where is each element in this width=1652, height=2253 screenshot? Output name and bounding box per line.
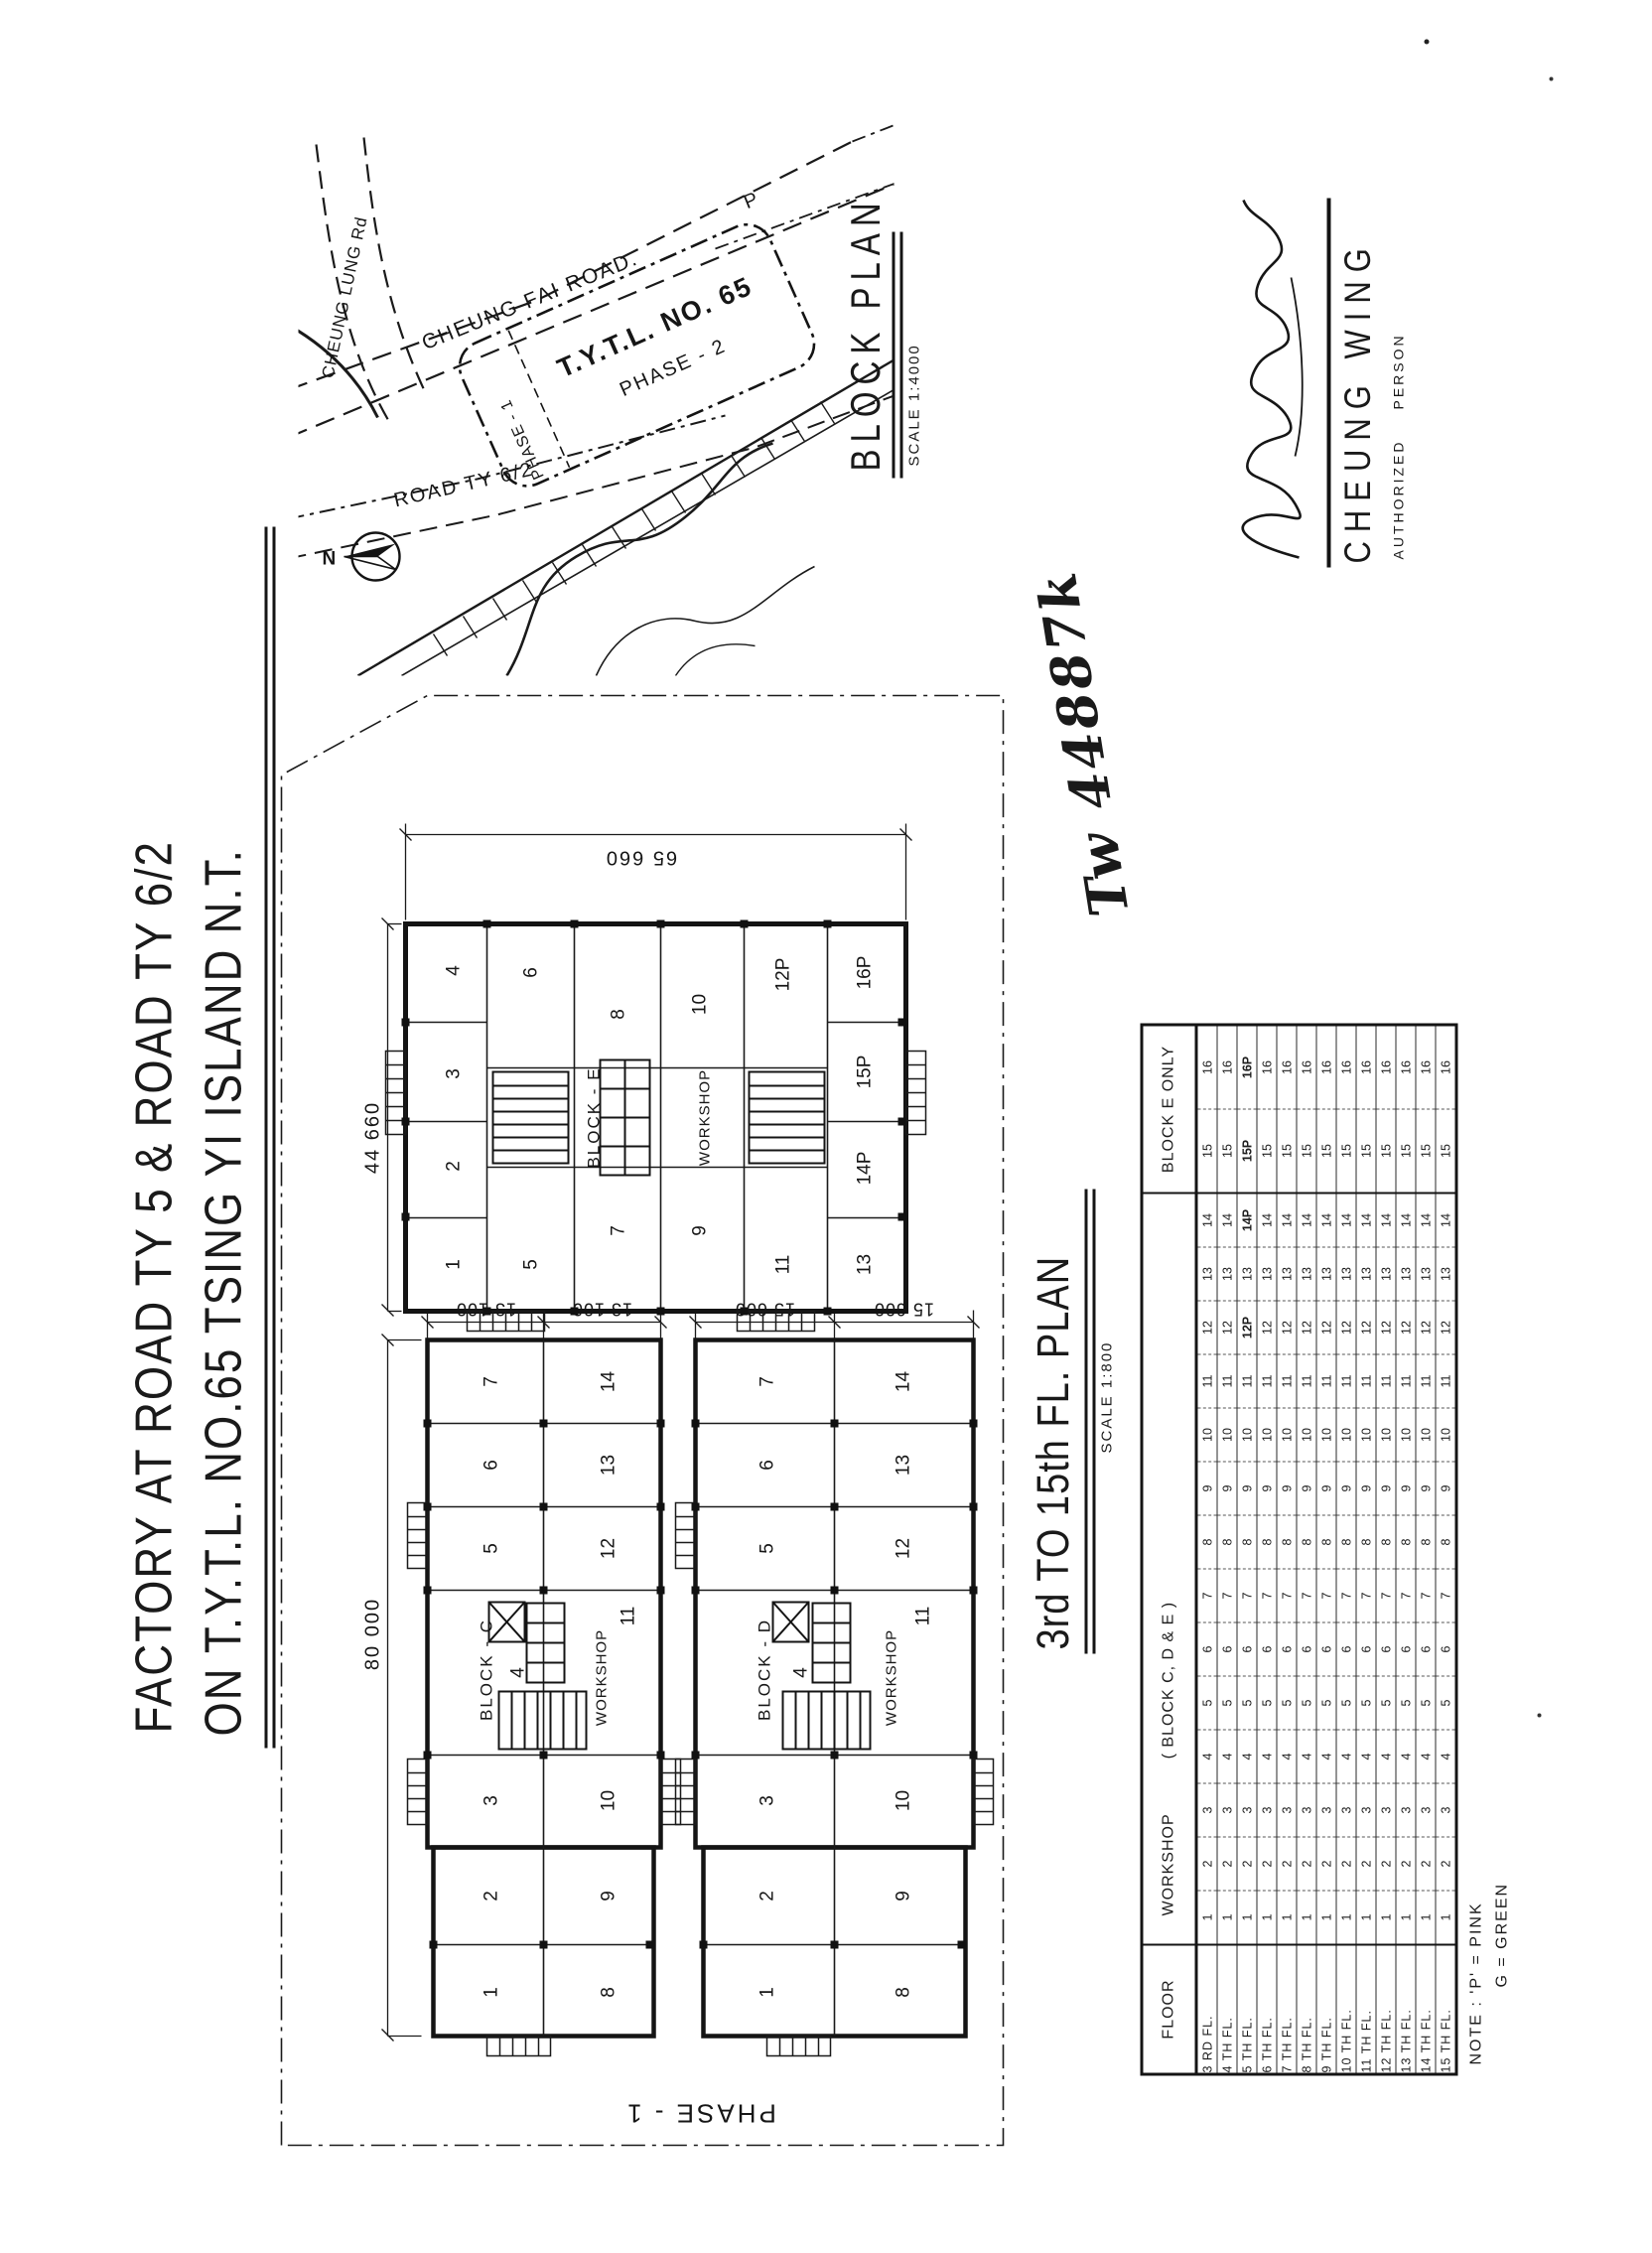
room-number: 12	[598, 1537, 619, 1558]
workshop-cell: 12	[1376, 1301, 1396, 1354]
workshop-cell: 16	[1356, 1025, 1376, 1109]
workshop-cell: 16	[1257, 1025, 1277, 1109]
workshop-cell: 5	[1277, 1676, 1297, 1730]
workshop-header: WORKSHOP ( BLOCK C, D & E )	[1142, 1193, 1196, 1944]
room-number: 11	[772, 1254, 793, 1274]
workshop-cell: 15	[1297, 1109, 1316, 1194]
workshop-cell: 3	[1237, 1783, 1257, 1837]
workshop-cell: 6	[1217, 1622, 1237, 1676]
block-e-stair-tabs	[385, 1051, 925, 1331]
workshop-cell: 11	[1336, 1354, 1356, 1408]
dim-e-height: 65 660	[604, 846, 676, 868]
room-number: 2	[481, 1891, 501, 1901]
workshop-cell: 7	[1316, 1569, 1336, 1622]
room-number: 3	[443, 1068, 464, 1079]
workshop-cell: 2	[1257, 1837, 1277, 1891]
workshop-cell: 8	[1277, 1515, 1297, 1569]
room-number: 10	[689, 993, 710, 1014]
workshop-cell: 5	[1396, 1676, 1416, 1730]
workshop-cell: 13	[1277, 1247, 1297, 1301]
room-number: 3	[481, 1795, 501, 1806]
workshop-cell: 7	[1376, 1569, 1396, 1622]
north-arrow-icon: N	[322, 532, 399, 580]
room-number: 6	[520, 967, 541, 978]
schedule-header-row: FLOOR WORKSHOP ( BLOCK C, D & E ) BLOCK …	[1142, 1025, 1196, 2074]
workshop-cell: 8	[1316, 1515, 1336, 1569]
workshop-cell: 8	[1196, 1515, 1217, 1569]
block-d-room-numbers: 1 2 3 4 5 6 7 8 9 10 11 12 13 14	[757, 1370, 933, 1997]
workshop-cell: 16	[1196, 1025, 1217, 1109]
workshop-cell: 5	[1316, 1676, 1336, 1730]
room-number: 16P	[854, 955, 875, 989]
workshop-cell: 3	[1356, 1783, 1376, 1837]
workshop-cell: 13	[1436, 1247, 1456, 1301]
workshop-cell: 5	[1376, 1676, 1396, 1730]
floor-cell: 8 TH FL.	[1297, 1944, 1316, 2074]
room-number: 3	[757, 1795, 777, 1806]
workshop-cell: 1	[1257, 1891, 1277, 1945]
workshop-cell: 11	[1436, 1354, 1456, 1408]
workshop-cell: 1	[1376, 1891, 1396, 1945]
workshop-cell: 12	[1436, 1301, 1456, 1354]
room-number: 13	[598, 1454, 619, 1475]
workshop-cell: 4	[1196, 1730, 1217, 1783]
workshop-cell: 6	[1356, 1622, 1376, 1676]
workshop-cell: 11	[1217, 1354, 1237, 1408]
room-number: 12	[893, 1537, 913, 1558]
workshop-cell: 8	[1297, 1515, 1316, 1569]
workshop-cell: 6	[1316, 1622, 1336, 1676]
workshop-cell: 6	[1436, 1622, 1456, 1676]
workshop-cell: 3	[1316, 1783, 1336, 1837]
workshop-cell: 13	[1336, 1247, 1356, 1301]
phase-1-label: PHASE - 1	[624, 2098, 776, 2128]
workshop-cell: 3	[1196, 1783, 1217, 1837]
workshop-cell: 15P	[1237, 1109, 1257, 1194]
room-number: 14P	[854, 1151, 875, 1185]
workshop-cell: 5	[1416, 1676, 1436, 1730]
workshop-cell: 11	[1416, 1354, 1436, 1408]
workshop-cell: 14	[1416, 1193, 1436, 1247]
room-number: 7	[608, 1225, 628, 1236]
workshop-cell: 16	[1416, 1025, 1436, 1109]
workshop-cell: 9	[1416, 1462, 1436, 1515]
workshop-cell: 2	[1297, 1837, 1316, 1891]
floor-header: FLOOR	[1142, 1944, 1196, 2074]
workshop-cell: 4	[1396, 1730, 1416, 1783]
floor-cell: 9 TH FL.	[1316, 1944, 1336, 2074]
workshop-cell: 12	[1396, 1301, 1416, 1354]
workshop-cell: 9	[1436, 1462, 1456, 1515]
workshop-cell: 8	[1257, 1515, 1277, 1569]
floor-cell: 4 TH FL.	[1217, 1944, 1237, 2074]
cheung-lung-road-label: CHEUNG LUNG Rd	[318, 214, 370, 379]
authorized-person-name: CHEUNG WING	[1336, 239, 1372, 563]
workshop-cell: 13	[1237, 1247, 1257, 1301]
workshop-cell: 2	[1196, 1837, 1217, 1891]
workshop-cell: 14	[1356, 1193, 1376, 1247]
floor-plan-heading: 3rd TO 15th FL. PLAN	[1029, 1255, 1071, 1649]
workshop-cell: 7	[1217, 1569, 1237, 1622]
workshop-header-word: WORKSHOP	[1160, 1813, 1177, 1915]
workshop-cell: 14	[1376, 1193, 1396, 1247]
floor-cell: 15 TH FL.	[1436, 1944, 1456, 2074]
room-number: 4	[443, 964, 464, 975]
schedule-row: 7 TH FL.12345678910111213141516	[1277, 1025, 1297, 2074]
workshop-cell: 7	[1196, 1569, 1217, 1622]
role-word-authorized: AUTHORIZED	[1390, 439, 1406, 559]
room-number: 14	[598, 1370, 619, 1392]
workshop-cell: 10	[1356, 1408, 1376, 1462]
workshop-cell: 12	[1356, 1301, 1376, 1354]
workshop-cell: 3	[1297, 1783, 1316, 1837]
workshop-cell: 14	[1277, 1193, 1297, 1247]
workshop-cell: 5	[1257, 1676, 1277, 1730]
schedule-row: 6 TH FL.12345678910111213141516	[1257, 1025, 1277, 2074]
workshop-cell: 12	[1336, 1301, 1356, 1354]
block-c-name: BLOCK - C	[477, 1618, 495, 1720]
block-plan-inset: T.Y.T.L. NO. 65 PHASE - 2 PHASE - 1 CHEU…	[298, 89, 894, 675]
workshop-cell: 2	[1376, 1837, 1396, 1891]
schedule-row: 13 TH FL.12345678910111213141516	[1396, 1025, 1416, 2074]
room-number: 8	[598, 1987, 619, 1998]
workshop-cell: 8	[1436, 1515, 1456, 1569]
room-number: 4	[507, 1666, 528, 1677]
workshop-cell: 10	[1396, 1408, 1416, 1462]
workshop-cell: 1	[1297, 1891, 1316, 1945]
room-number: 14	[893, 1370, 913, 1392]
workshop-cell: 9	[1356, 1462, 1376, 1515]
signature-scribble	[1199, 178, 1328, 575]
schedule-row: 14 TH FL.12345678910111213141516	[1416, 1025, 1436, 2074]
floor-cell: 12 TH FL.	[1376, 1944, 1396, 2074]
block-d-cores	[772, 1602, 870, 1749]
workshop-cell: 1	[1217, 1891, 1237, 1945]
room-number: 12P	[772, 957, 793, 991]
room-number: 1	[443, 1259, 464, 1270]
workshop-cell: 15	[1416, 1109, 1436, 1194]
drawing-sheet: FACTORY AT ROAD TY 5 & ROAD TY 6/2 ON T.…	[0, 0, 1652, 2253]
workshop-cell: 10	[1257, 1408, 1277, 1462]
schedule-row: 12 TH FL.12345678910111213141516	[1376, 1025, 1396, 2074]
workshop-cell: 9	[1257, 1462, 1277, 1515]
room-number: 1	[481, 1987, 501, 1998]
block-e-name: BLOCK - E	[584, 1066, 603, 1168]
schedule-row: 4 TH FL.12345678910111213141516	[1217, 1025, 1237, 2074]
workshop-cell: 13	[1257, 1247, 1277, 1301]
workshop-cell: 12	[1257, 1301, 1277, 1354]
room-number: 5	[520, 1259, 541, 1270]
workshop-cell: 6	[1257, 1622, 1277, 1676]
workshop-cell: 2	[1217, 1837, 1237, 1891]
workshop-cell: 5	[1436, 1676, 1456, 1730]
room-number: 7	[481, 1376, 501, 1387]
schedule-table: FLOOR WORKSHOP ( BLOCK C, D & E ) BLOCK …	[1140, 1023, 1457, 2075]
schedule-row: 5 TH FL.123456789101112P1314P15P16P	[1237, 1025, 1257, 2074]
workshop-cell: 12	[1416, 1301, 1436, 1354]
workshop-cell: 9	[1196, 1462, 1217, 1515]
scan-speck	[1537, 1713, 1541, 1717]
workshop-cell: 15	[1396, 1109, 1416, 1194]
workshop-cell: 3	[1277, 1783, 1297, 1837]
workshop-cell: 10	[1196, 1408, 1217, 1462]
workshop-cell: 4	[1237, 1730, 1257, 1783]
workshop-cell: 6	[1376, 1622, 1396, 1676]
workshop-header-blocks: ( BLOCK C, D & E )	[1160, 1601, 1177, 1758]
scan-speck	[1424, 39, 1429, 44]
workshop-cell: 6	[1396, 1622, 1416, 1676]
workshop-cell: 4	[1277, 1730, 1297, 1783]
workshop-cell: 16	[1277, 1025, 1297, 1109]
room-number: 6	[757, 1460, 777, 1471]
workshop-cell: 14	[1436, 1193, 1456, 1247]
workshop-cell: 9	[1336, 1462, 1356, 1515]
workshop-cell: 10	[1217, 1408, 1237, 1462]
workshop-cell: 5	[1356, 1676, 1376, 1730]
block-e-workshop-label: WORKSHOP	[696, 1068, 713, 1165]
workshop-cell: 9	[1237, 1462, 1257, 1515]
workshop-cell: 1	[1277, 1891, 1297, 1945]
workshop-cell: 11	[1297, 1354, 1316, 1408]
workshop-cell: 4	[1356, 1730, 1376, 1783]
room-number: 6	[481, 1460, 501, 1471]
workshop-cell: 9	[1316, 1462, 1336, 1515]
workshop-cell: 8	[1416, 1515, 1436, 1569]
workshop-cell: 3	[1416, 1783, 1436, 1837]
schedule-note-line1: NOTE : 'P' = PINK	[1467, 1901, 1485, 2064]
room-number: 2	[757, 1891, 777, 1901]
dimension-lines	[381, 823, 979, 2041]
workshop-cell: 16	[1217, 1025, 1237, 1109]
workshop-cell: 6	[1196, 1622, 1217, 1676]
schedule-row: 9 TH FL.12345678910111213141516	[1316, 1025, 1336, 2074]
workshop-cell: 15	[1196, 1109, 1217, 1194]
workshop-cell: 7	[1257, 1569, 1277, 1622]
block-d-plan: 1 2 3 4 5 6 7 8 9 10 11 12 13 14 BLOCK -…	[675, 1339, 993, 2055]
workshop-cell: 4	[1316, 1730, 1336, 1783]
parking-label: P	[741, 188, 761, 212]
role-word-person: PERSON	[1390, 333, 1406, 409]
room-number: 10	[598, 1789, 619, 1810]
workshop-cell: 15	[1257, 1109, 1277, 1194]
workshop-cell: 13	[1196, 1247, 1217, 1301]
workshop-cell: 12P	[1237, 1301, 1257, 1354]
floor-cell: 5 TH FL.	[1237, 1944, 1257, 2074]
workshop-cell: 2	[1436, 1837, 1456, 1891]
room-number: 13	[854, 1253, 875, 1274]
block-c-plan: 1 2 3 4 5 6 7 8 9 10 11 12 13 14 BLOCK -…	[407, 1339, 680, 2055]
workshop-cell: 16	[1336, 1025, 1356, 1109]
block-plan-heading: BLOCK PLAN	[842, 196, 880, 471]
workshop-cell: 13	[1376, 1247, 1396, 1301]
workshop-cell: 1	[1396, 1891, 1416, 1945]
workshop-cell: 4	[1336, 1730, 1356, 1783]
workshop-cell: 1	[1336, 1891, 1356, 1945]
room-number: 11	[618, 1606, 638, 1625]
workshop-cell: 8	[1217, 1515, 1237, 1569]
room-number: 8	[893, 1987, 913, 1998]
workshop-cell: 14	[1297, 1193, 1316, 1247]
schedule-row: 15 TH FL.12345678910111213141516	[1436, 1025, 1456, 2074]
floor-cell: 14 TH FL.	[1416, 1944, 1436, 2074]
workshop-cell: 4	[1297, 1730, 1316, 1783]
workshop-cell: 4	[1436, 1730, 1456, 1783]
room-number: 11	[912, 1606, 933, 1625]
workshop-cell: 3	[1336, 1783, 1356, 1837]
workshop-cell: 2	[1396, 1837, 1416, 1891]
block-e-columns	[401, 919, 905, 1315]
workshop-cell: 3	[1376, 1783, 1396, 1837]
block-c-workshop-label: WORKSHOP	[593, 1628, 610, 1725]
signature-line	[1326, 198, 1330, 567]
schedule-note-line2: G = GREEN	[1493, 1882, 1511, 1987]
room-number: 8	[608, 1009, 628, 1020]
workshop-cell: 8	[1376, 1515, 1396, 1569]
workshop-cell: 1	[1356, 1891, 1376, 1945]
workshop-cell: 7	[1336, 1569, 1356, 1622]
workshop-cell: 2	[1237, 1837, 1257, 1891]
workshop-cell: 6	[1416, 1622, 1436, 1676]
workshop-cell: 12	[1217, 1301, 1237, 1354]
workshop-cell: 5	[1196, 1676, 1217, 1730]
workshop-cell: 8	[1356, 1515, 1376, 1569]
workshop-cell: 13	[1356, 1247, 1376, 1301]
room-number: 7	[757, 1376, 777, 1387]
north-label: N	[322, 548, 336, 569]
floor-cell: 10 TH FL.	[1336, 1944, 1356, 2074]
dim-cd-width: 80 000	[361, 1597, 383, 1669]
workshop-cell: 16	[1316, 1025, 1336, 1109]
workshop-cell: 15	[1277, 1109, 1297, 1194]
workshop-cell: 11	[1396, 1354, 1416, 1408]
floor-cell: 6 TH FL.	[1257, 1944, 1277, 2074]
workshop-cell: 3	[1396, 1783, 1416, 1837]
block-e-cores	[492, 1059, 824, 1175]
workshop-cell: 2	[1277, 1837, 1297, 1891]
authorized-person-role: AUTHORIZED PERSON	[1390, 333, 1406, 559]
workshop-cell: 15	[1316, 1109, 1336, 1194]
floor-cell: 3 RD FL.	[1196, 1944, 1217, 2074]
block-d-name: BLOCK - D	[755, 1618, 773, 1720]
floor-plan-underline	[1084, 1189, 1095, 1653]
workshop-cell: 1	[1316, 1891, 1336, 1945]
workshop-cell: 16	[1396, 1025, 1416, 1109]
workshop-cell: 13	[1396, 1247, 1416, 1301]
workshop-cell: 7	[1416, 1569, 1436, 1622]
workshop-cell: 13	[1416, 1247, 1436, 1301]
workshop-cell: 13	[1316, 1247, 1336, 1301]
workshop-cell: 3	[1257, 1783, 1277, 1837]
workshop-cell: 15	[1356, 1109, 1376, 1194]
workshop-cell: 5	[1336, 1676, 1356, 1730]
workshop-cell: 1	[1237, 1891, 1257, 1945]
room-number: 5	[481, 1543, 501, 1554]
workshop-cell: 1	[1196, 1891, 1217, 1945]
workshop-cell: 14	[1336, 1193, 1356, 1247]
block-plan-scale: SCALE 1:4000	[905, 344, 922, 466]
workshop-cell: 12	[1297, 1301, 1316, 1354]
room-number: 9	[689, 1225, 710, 1236]
schedule-row: 8 TH FL.12345678910111213141516	[1297, 1025, 1316, 2074]
workshop-cell: 6	[1297, 1622, 1316, 1676]
workshop-cell: 5	[1217, 1676, 1237, 1730]
workshop-cell: 7	[1356, 1569, 1376, 1622]
workshop-cell: 13	[1217, 1247, 1237, 1301]
workshop-cell: 4	[1376, 1730, 1396, 1783]
floor-cell: 13 TH FL.	[1396, 1944, 1416, 2074]
workshop-cell: 10	[1336, 1408, 1356, 1462]
workshop-cell: 10	[1277, 1408, 1297, 1462]
block-d-workshop-label: WORKSHOP	[883, 1628, 899, 1725]
workshop-cell: 15	[1376, 1109, 1396, 1194]
workshop-cell: 14P	[1237, 1193, 1257, 1247]
workshop-cell: 7	[1297, 1569, 1316, 1622]
block-c-room-numbers: 1 2 3 4 5 6 7 8 9 10 11 12 13 14	[481, 1370, 638, 1997]
workshop-cell: 14	[1316, 1193, 1336, 1247]
schedule-row: 3 RD FL.12345678910111213141516	[1196, 1025, 1217, 2074]
workshop-cell: 6	[1277, 1622, 1297, 1676]
workshop-cell: 5	[1237, 1676, 1257, 1730]
workshop-cell: 2	[1336, 1837, 1356, 1891]
workshop-cell: 15	[1436, 1109, 1456, 1194]
room-number: 13	[893, 1454, 913, 1475]
workshop-cell: 10	[1297, 1408, 1316, 1462]
workshop-cell: 10	[1436, 1408, 1456, 1462]
workshop-cell: 7	[1237, 1569, 1257, 1622]
block-e-plan: 1 2 3 4 5 6 7 8 9 10 11 12P 13 14P 15P 1…	[385, 919, 925, 1331]
workshop-cell: 9	[1217, 1462, 1237, 1515]
workshop-cell: 6	[1336, 1622, 1356, 1676]
workshop-cell: 14	[1396, 1193, 1416, 1247]
workshop-cell: 11	[1316, 1354, 1336, 1408]
workshop-cell: 12	[1316, 1301, 1336, 1354]
room-number: 5	[757, 1543, 777, 1554]
room-number: 9	[893, 1891, 913, 1901]
workshop-cell: 9	[1396, 1462, 1416, 1515]
room-number: 10	[893, 1789, 913, 1810]
workshop-cell: 7	[1436, 1569, 1456, 1622]
workshop-cell: 11	[1257, 1354, 1277, 1408]
workshop-cell: 14	[1257, 1193, 1277, 1247]
workshop-cell: 2	[1416, 1837, 1436, 1891]
room-number: 15P	[854, 1055, 875, 1088]
room-number: 2	[443, 1161, 464, 1172]
room-number: 1	[757, 1987, 777, 1998]
workshop-cell: 4	[1257, 1730, 1277, 1783]
workshop-cell: 10	[1416, 1408, 1436, 1462]
workshop-cell: 8	[1396, 1515, 1416, 1569]
workshop-cell: 11	[1277, 1354, 1297, 1408]
workshop-cell: 9	[1277, 1462, 1297, 1515]
workshop-cell: 5	[1297, 1676, 1316, 1730]
block-plan-underline	[892, 231, 902, 478]
scanned-drawing-page: FACTORY AT ROAD TY 5 & ROAD TY 6/2 ON T.…	[0, 0, 1652, 2253]
workshop-cell: 16	[1436, 1025, 1456, 1109]
block-plan-map: T.Y.T.L. NO. 65 PHASE - 2 PHASE - 1 CHEU…	[298, 89, 894, 675]
workshop-schedule: FLOOR WORKSHOP ( BLOCK C, D & E ) BLOCK …	[1140, 1023, 1457, 2075]
workshop-cell: 16	[1297, 1025, 1316, 1109]
workshop-cell: 3	[1217, 1783, 1237, 1837]
workshop-cell: 2	[1356, 1837, 1376, 1891]
workshop-cell: 2	[1316, 1837, 1336, 1891]
block-e-only-header: BLOCK E ONLY	[1142, 1025, 1196, 1194]
workshop-cell: 14	[1196, 1193, 1217, 1247]
workshop-cell: 16	[1376, 1025, 1396, 1109]
workshop-cell: 10	[1316, 1408, 1336, 1462]
room-number: 4	[790, 1666, 811, 1677]
workshop-cell: 11	[1376, 1354, 1396, 1408]
room-number: 9	[598, 1891, 619, 1901]
